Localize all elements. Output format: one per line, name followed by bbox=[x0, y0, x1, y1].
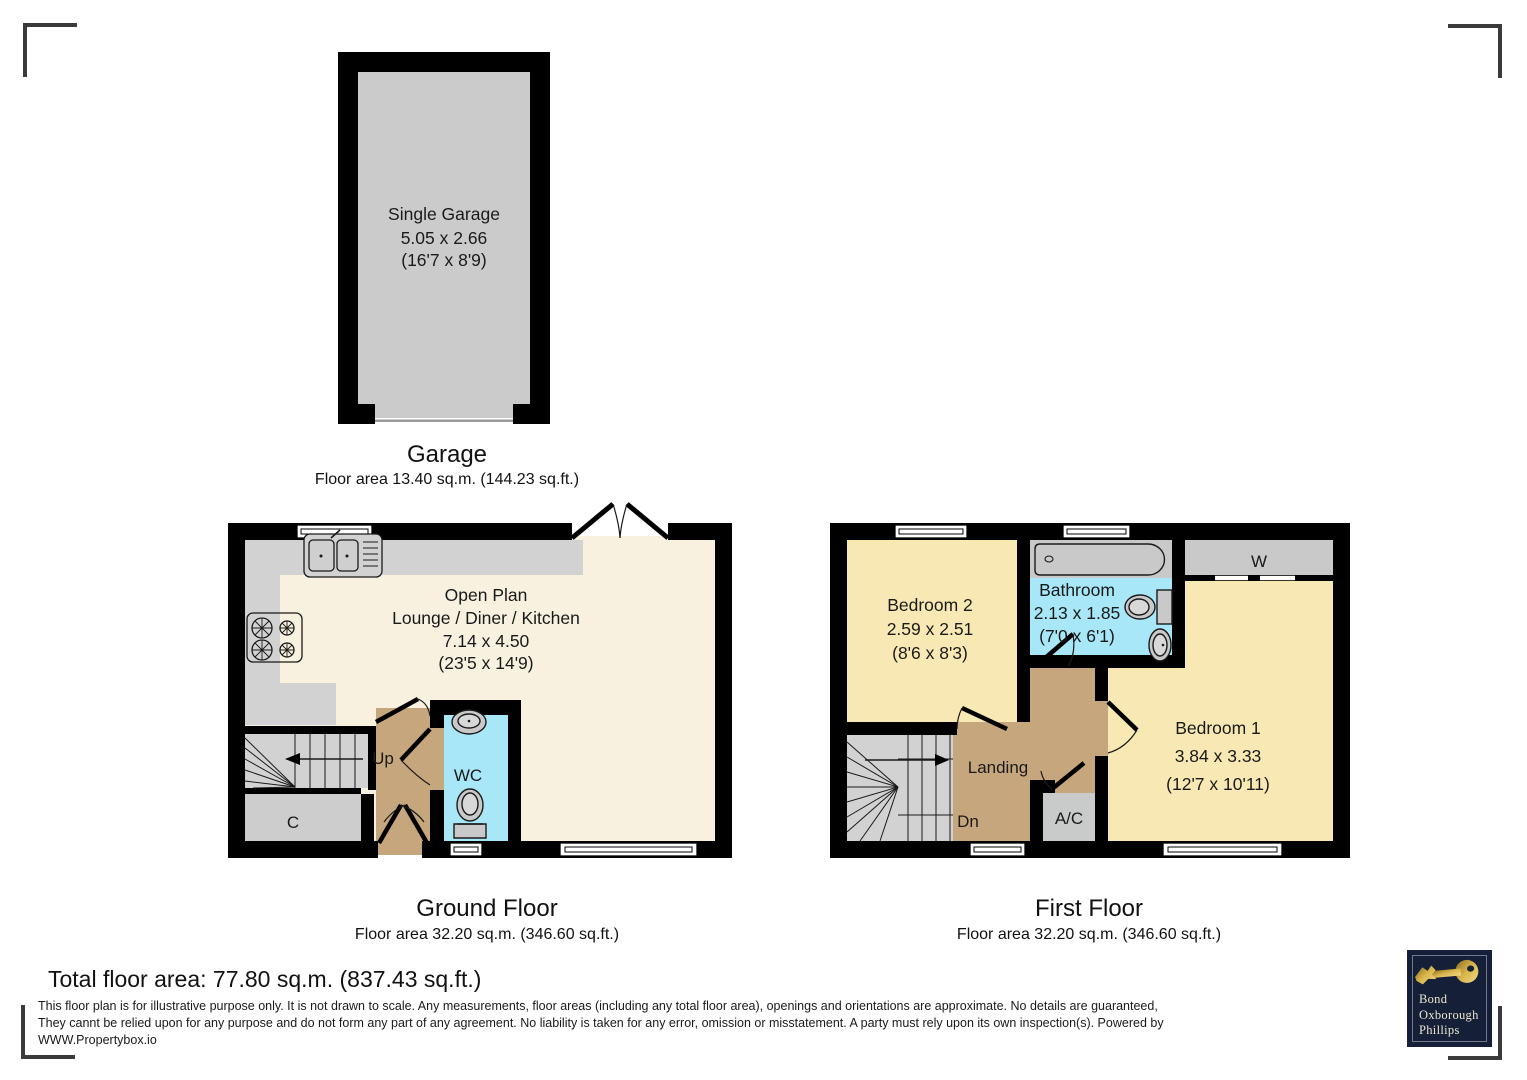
closet-c bbox=[245, 794, 361, 841]
bedroom1-dim-imperial: (12'7 x 10'11) bbox=[1166, 774, 1270, 794]
corner-mark-top-right bbox=[1448, 24, 1502, 78]
open-plan-label-1: Open Plan bbox=[445, 585, 528, 605]
stairs-down-label: Dn bbox=[957, 812, 979, 831]
ground-floor-area: Floor area 32.20 sq.m. (346.60 sq.ft.) bbox=[277, 926, 697, 944]
bedroom1-dim-metric: 3.84 x 3.33 bbox=[1175, 746, 1262, 766]
garage-plan: Single Garage 5.05 x 2.66 (16'7 x 8'9) bbox=[338, 52, 550, 424]
open-plan-dim-metric: 7.14 x 4.50 bbox=[443, 631, 530, 651]
bedroom1-label: Bedroom 1 bbox=[1175, 718, 1261, 738]
garage-dim-metric: 5.05 x 2.66 bbox=[401, 228, 488, 248]
garage-door bbox=[375, 420, 513, 423]
first-floor-area: Floor area 32.20 sq.m. (346.60 sq.ft.) bbox=[879, 926, 1299, 944]
wc-toilet bbox=[454, 789, 486, 838]
stairs-up bbox=[245, 734, 368, 788]
floorplan-page: Single Garage 5.05 x 2.66 (16'7 x 8'9) G… bbox=[0, 0, 1527, 1080]
bathroom-dim-imperial: (7'0 x 6'1) bbox=[1039, 626, 1115, 646]
garage-area: Floor area 13.40 sq.m. (144.23 sq.ft.) bbox=[237, 471, 657, 489]
ground-floor-plan: Open Plan Lounge / Diner / Kitchen 7.14 … bbox=[228, 488, 732, 860]
bathroom-window bbox=[1063, 525, 1130, 538]
wc-window bbox=[450, 843, 482, 856]
lounge-window bbox=[560, 843, 697, 856]
bedroom2-dim-imperial: (8'6 x 8'3) bbox=[892, 643, 968, 663]
logo-line-1: Bond bbox=[1419, 992, 1479, 1008]
ac-label: A/C bbox=[1055, 809, 1083, 828]
first-floor-title: First Floor bbox=[929, 895, 1249, 923]
bedroom1-window bbox=[1163, 843, 1282, 856]
bedroom2-window bbox=[895, 525, 967, 538]
disclaimer-line-1: This floor plan is for illustrative purp… bbox=[38, 999, 1158, 1013]
ground-floor-title: Ground Floor bbox=[327, 895, 647, 923]
wardrobe-label: W bbox=[1251, 552, 1267, 571]
wardrobe-sliding-doors bbox=[1185, 575, 1333, 581]
front-door-opening bbox=[378, 841, 422, 855]
garage-dim-imperial: (16'7 x 8'9) bbox=[401, 250, 486, 270]
key-icon bbox=[1411, 956, 1488, 992]
disclaimer-line-3: WWW.Propertybox.io bbox=[38, 1033, 157, 1047]
landing-label: Landing bbox=[968, 758, 1029, 777]
wc-basin bbox=[452, 710, 486, 734]
closet-c-label: C bbox=[287, 813, 299, 832]
bathroom-label: Bathroom bbox=[1039, 580, 1115, 600]
kitchen-sink bbox=[304, 530, 382, 577]
corner-mark-bottom-left bbox=[21, 1005, 75, 1059]
logo-line-3: Phillips bbox=[1419, 1023, 1479, 1039]
agent-logo: Bond Oxborough Phillips bbox=[1407, 950, 1492, 1047]
bath-tub bbox=[1035, 544, 1165, 575]
bedroom2-dim-metric: 2.59 x 2.51 bbox=[887, 619, 974, 639]
garage-room-label: Single Garage bbox=[388, 204, 500, 224]
bathroom-basin bbox=[1149, 629, 1171, 661]
disclaimer-line-2: They cannt be relied upon for any purpos… bbox=[38, 1016, 1164, 1030]
stairs-down bbox=[847, 735, 953, 841]
wc-label: WC bbox=[454, 766, 482, 785]
first-floor-plan: Bedroom 2 2.59 x 2.51 (8'6 x 8'3) Bathro… bbox=[830, 488, 1350, 860]
landing-window bbox=[970, 843, 1025, 856]
bedroom2-label: Bedroom 2 bbox=[887, 595, 973, 615]
open-plan-label-2: Lounge / Diner / Kitchen bbox=[392, 608, 580, 628]
garage-title: Garage bbox=[287, 441, 607, 469]
bathroom-dim-metric: 2.13 x 1.85 bbox=[1034, 603, 1121, 623]
stairs-up-label: Up bbox=[372, 749, 394, 768]
french-doors bbox=[572, 504, 668, 540]
total-floor-area: Total floor area: 77.80 sq.m. (837.43 sq… bbox=[48, 966, 481, 993]
open-plan-dim-imperial: (23'5 x 14'9) bbox=[438, 653, 533, 673]
corner-mark-top-left bbox=[23, 23, 77, 77]
logo-line-2: Oxborough bbox=[1419, 1008, 1479, 1024]
